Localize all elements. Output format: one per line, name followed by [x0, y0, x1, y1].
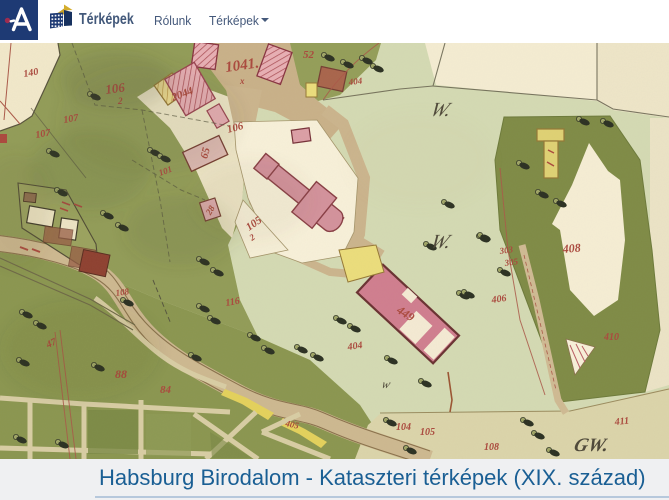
svg-text:406: 406: [490, 293, 507, 306]
svg-text:108: 108: [484, 442, 499, 453]
svg-text:108: 108: [115, 286, 130, 298]
svg-text:105: 105: [420, 427, 435, 438]
svg-text:GW.: GW.: [572, 435, 611, 456]
svg-text:411: 411: [613, 416, 630, 429]
svg-text:404: 404: [346, 340, 363, 353]
svg-text:404: 404: [347, 76, 363, 88]
svg-text:104: 104: [396, 422, 411, 433]
svg-text:303: 303: [498, 244, 514, 256]
svg-text:52: 52: [303, 49, 315, 61]
svg-text:408: 408: [561, 240, 581, 256]
svg-text:305: 305: [503, 256, 519, 268]
svg-text:x: x: [239, 76, 245, 86]
svg-text:84: 84: [160, 384, 172, 396]
svg-text:410: 410: [603, 332, 619, 343]
